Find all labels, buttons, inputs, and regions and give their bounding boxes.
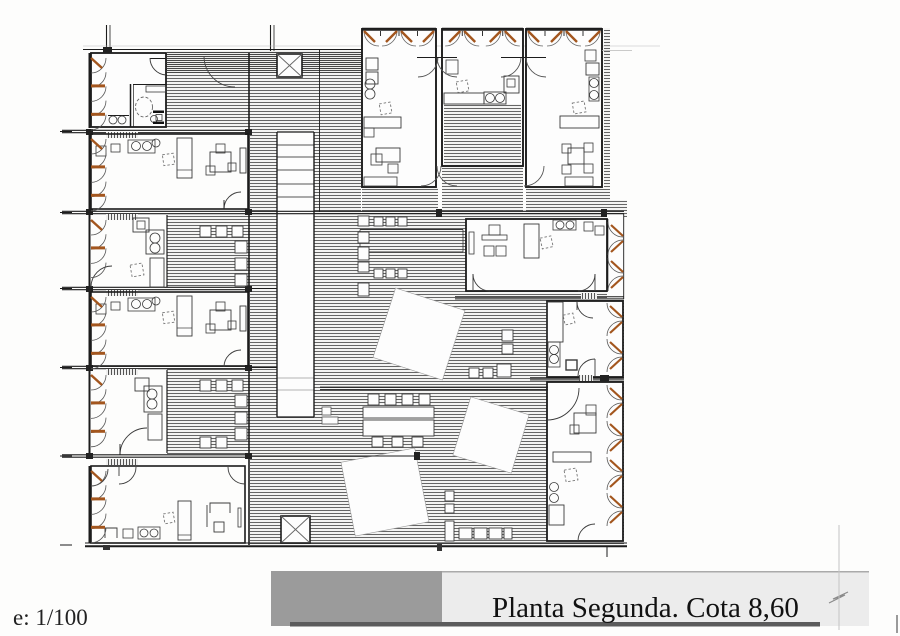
svg-text:Planta Segunda. Cota 8,60: Planta Segunda. Cota 8,60 — [492, 592, 799, 624]
svg-text:e: 1/100: e: 1/100 — [13, 605, 88, 630]
